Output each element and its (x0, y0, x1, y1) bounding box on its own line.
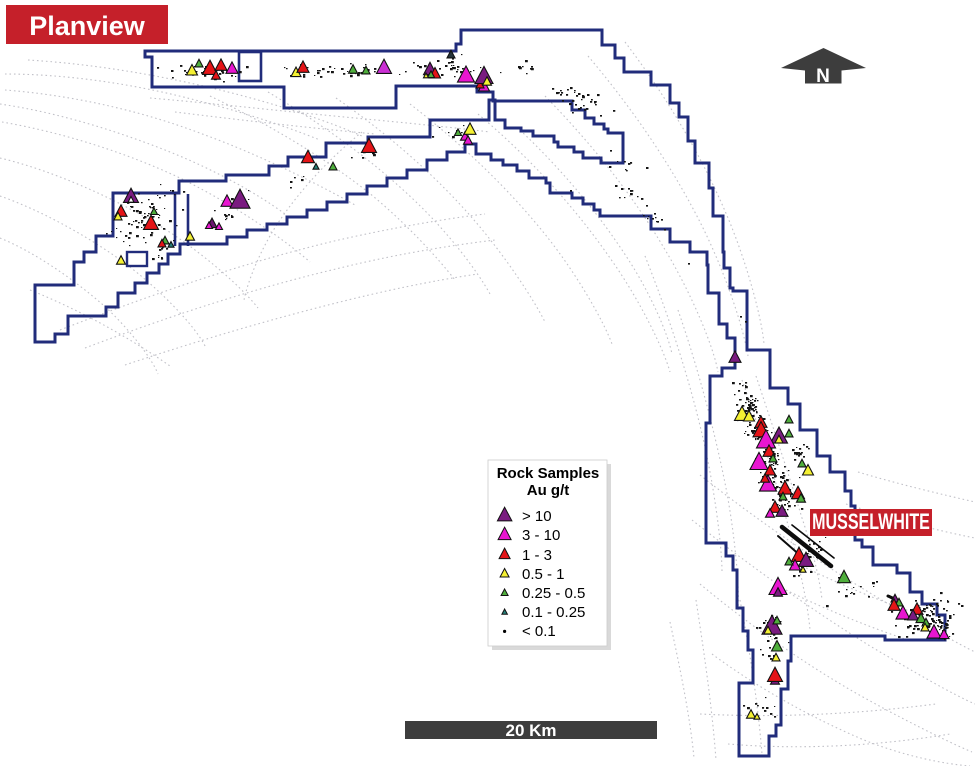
svg-text:1 - 3: 1 - 3 (522, 547, 552, 564)
svg-text:Rock Samples: Rock Samples (497, 465, 600, 482)
svg-text:20 Km: 20 Km (505, 721, 556, 740)
svg-text:0.5 - 1: 0.5 - 1 (522, 566, 565, 583)
svg-text:N: N (816, 66, 830, 87)
svg-text:MUSSELWHITE: MUSSELWHITE (812, 511, 930, 535)
svg-text:3 - 10: 3 - 10 (522, 527, 560, 544)
svg-text:Au g/t: Au g/t (527, 482, 570, 499)
svg-text:> 10: > 10 (522, 508, 552, 525)
svg-text:Planview: Planview (29, 11, 146, 41)
svg-text:0.25 - 0.5: 0.25 - 0.5 (522, 585, 585, 602)
svg-text:< 0.1: < 0.1 (522, 623, 556, 640)
svg-text:0.1 - 0.25: 0.1 - 0.25 (522, 604, 585, 621)
